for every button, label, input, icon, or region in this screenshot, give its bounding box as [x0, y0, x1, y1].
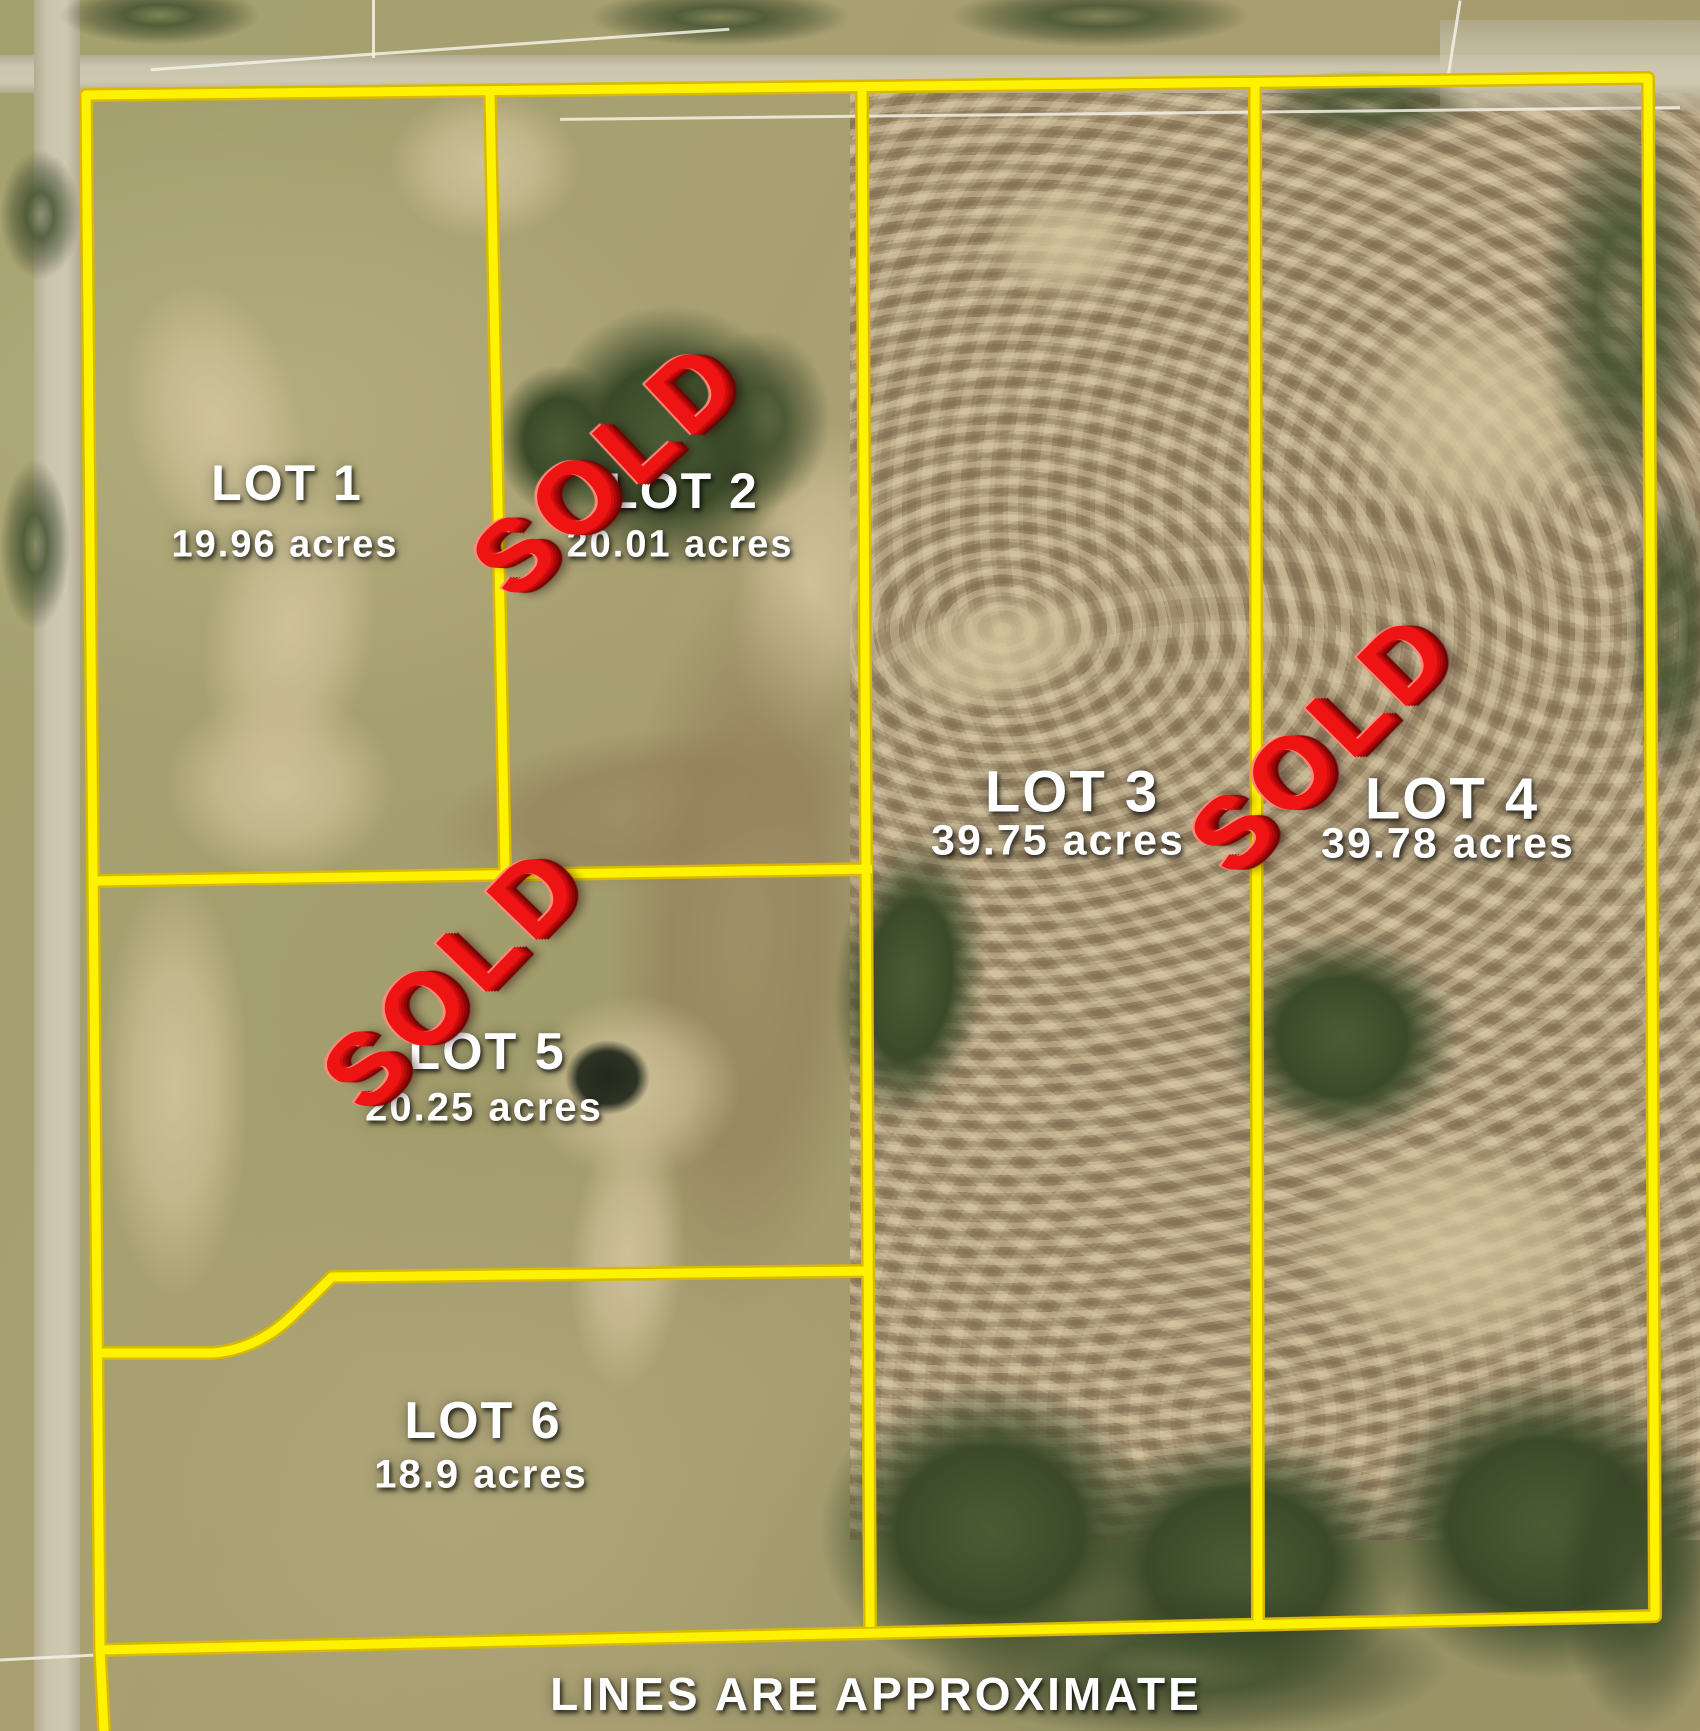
lot-1-title: LOT 1: [211, 454, 363, 512]
lot-6-title: LOT 6: [404, 1391, 561, 1451]
lot-3-title: LOT 3: [985, 759, 1159, 826]
lot-1-acres: 19.96 acres: [172, 524, 399, 567]
lot-3-acres: 39.75 acres: [931, 817, 1185, 866]
boundary-outline: [86, 78, 1655, 1731]
parcel-map: LOT 1 19.96 acres LOT 2 20.01 acres LOT …: [0, 0, 1700, 1731]
lot-6-acres: 18.9 acres: [374, 1453, 588, 1498]
lot-4-acres: 39.78 acres: [1321, 820, 1575, 869]
disclaimer-text: LINES ARE APPROXIMATE: [550, 1667, 1202, 1721]
